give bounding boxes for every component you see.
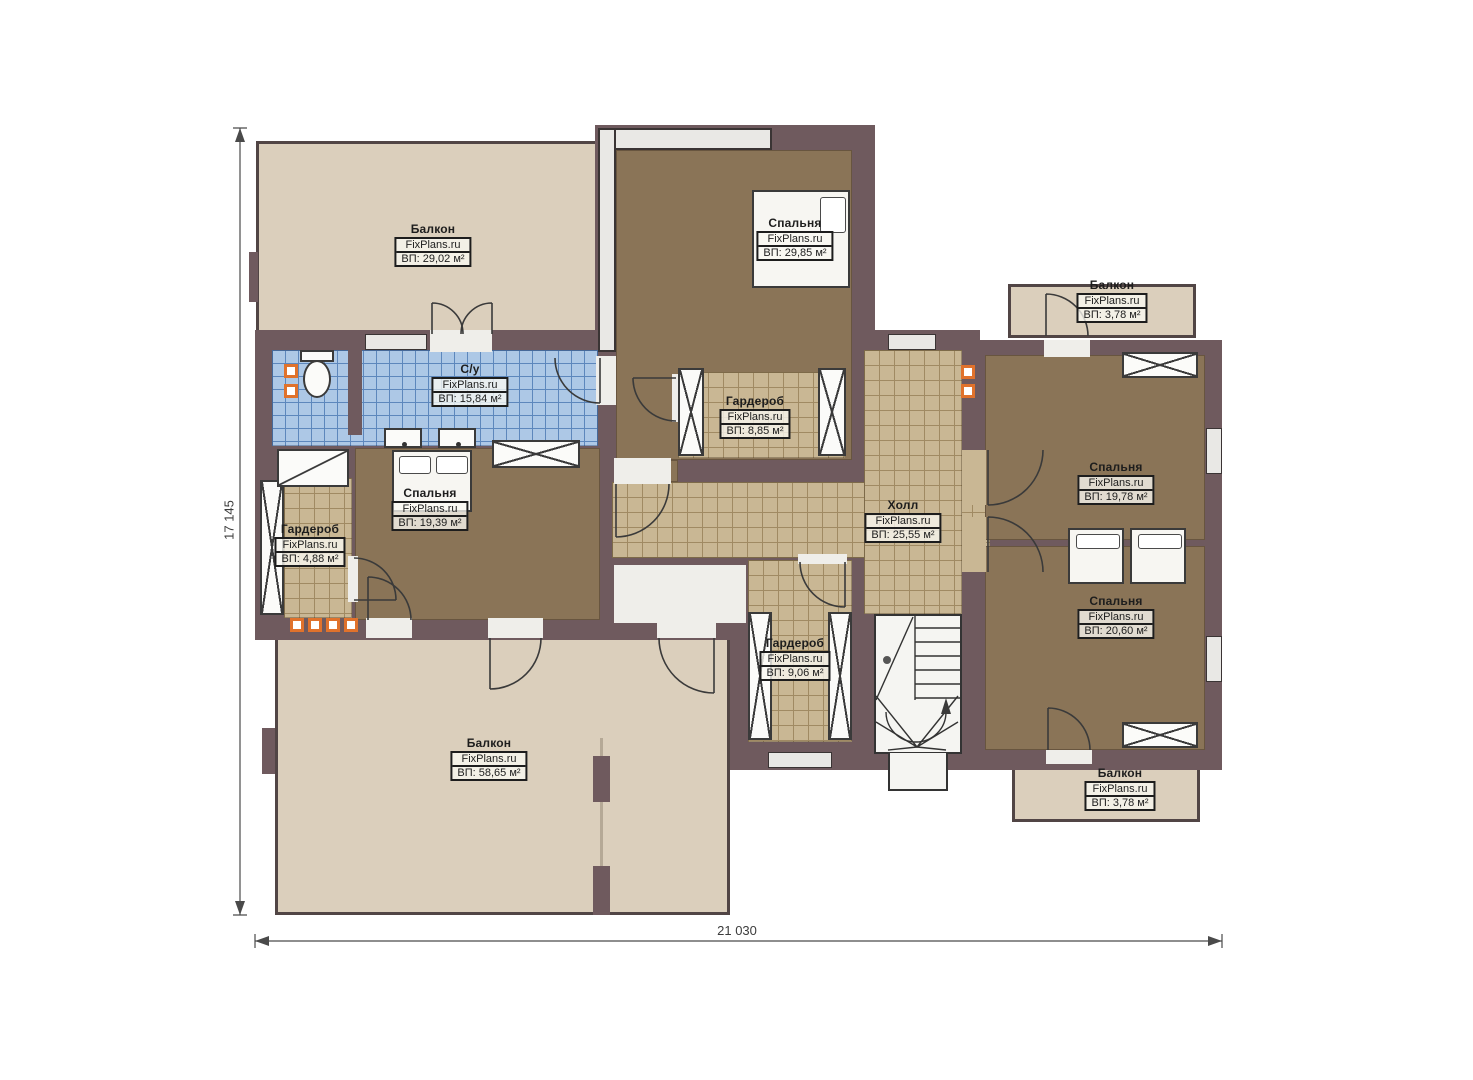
stairs xyxy=(874,614,962,754)
room-label-balcony-top-right: Балкон FixPlans.ru ВП: 3,78 м² xyxy=(1076,278,1147,323)
room-label-wardrobe-bottom: Гардероб FixPlans.ru ВП: 9,06 м² xyxy=(759,636,830,681)
window xyxy=(1206,636,1222,682)
room-label-balcony-top-left: Балкон FixPlans.ru ВП: 29,02 м² xyxy=(394,222,471,267)
opening-bedroom-r-upper xyxy=(962,450,986,505)
bathroom-partition xyxy=(348,350,362,435)
shower-icon xyxy=(277,449,349,487)
opening-balcony-bl-door xyxy=(488,618,543,638)
pillow xyxy=(399,456,431,474)
watermark: FixPlans.ru xyxy=(1086,783,1153,797)
room-label-bedroom-left: Спальня FixPlans.ru ВП: 19,39 м² xyxy=(391,486,468,531)
room-area: ВП: 19,78 м² xyxy=(1079,491,1152,503)
room-name: Спальня xyxy=(756,216,833,230)
wall-tower-top-gray xyxy=(598,128,772,150)
floor-hall-vertical xyxy=(864,350,962,614)
pillow xyxy=(436,456,468,474)
vent-icon xyxy=(308,618,322,632)
sink-icon xyxy=(384,428,422,448)
opening-wardrobe-left-door xyxy=(348,556,358,602)
room-area: ВП: 9,06 м² xyxy=(761,667,828,679)
opening-corridor-door xyxy=(614,458,671,484)
room-name: Холл xyxy=(864,498,941,512)
window xyxy=(1206,428,1222,474)
floor-plan: Балкон FixPlans.ru ВП: 29,02 м² Спальня … xyxy=(0,0,1473,1080)
room-label-bedroom-right-lower: Спальня FixPlans.ru ВП: 20,60 м² xyxy=(1077,594,1154,639)
balcony-pier xyxy=(249,252,258,302)
opening-balcony-br-door xyxy=(1046,750,1092,764)
room-name: Гардероб xyxy=(719,394,790,408)
opening-wardrobe-bottom-door xyxy=(798,554,847,564)
watermark: FixPlans.ru xyxy=(721,411,788,425)
room-label-bedroom-top: Спальня FixPlans.ru ВП: 29,85 м² xyxy=(756,216,833,261)
window xyxy=(768,752,832,768)
room-name: Гардероб xyxy=(759,636,830,650)
room-label-bedroom-right-upper: Спальня FixPlans.ru ВП: 19,78 м² xyxy=(1077,460,1154,505)
room-area: ВП: 58,65 м² xyxy=(452,767,525,779)
watermark: FixPlans.ru xyxy=(761,653,828,667)
watermark: FixPlans.ru xyxy=(866,515,939,529)
balcony-pier xyxy=(593,866,610,915)
pillow xyxy=(1076,534,1120,549)
dimension-height-label: 17 145 xyxy=(222,500,237,540)
watermark: FixPlans.ru xyxy=(758,233,831,247)
vent-icon xyxy=(290,618,304,632)
watermark: FixPlans.ru xyxy=(433,379,506,393)
room-name: Балкон xyxy=(394,222,471,236)
window xyxy=(365,334,427,350)
watermark: FixPlans.ru xyxy=(276,539,343,553)
vent-icon xyxy=(284,384,298,398)
room-name: Балкон xyxy=(1076,278,1147,292)
room-label-balcony-bottom-left: Балкон FixPlans.ru ВП: 58,65 м² xyxy=(450,736,527,781)
sink-icon xyxy=(438,428,476,448)
wall-tower-left-gray xyxy=(598,128,616,352)
pillow xyxy=(1138,534,1182,549)
closet-xbox xyxy=(1122,722,1198,748)
room-area: ВП: 8,85 м² xyxy=(721,425,788,437)
closet-xbox xyxy=(1122,352,1198,378)
room-name: Балкон xyxy=(1084,766,1155,780)
watermark: FixPlans.ru xyxy=(396,239,469,253)
watermark: FixPlans.ru xyxy=(1078,295,1145,309)
vent-icon xyxy=(326,618,340,632)
room-name: Спальня xyxy=(1077,594,1154,608)
dimension-width-label: 21 030 xyxy=(717,923,757,938)
watermark: FixPlans.ru xyxy=(1079,611,1152,625)
vent-icon xyxy=(961,384,975,398)
vent-icon xyxy=(344,618,358,632)
opening-bathroom-door xyxy=(596,356,616,405)
closet-xbox xyxy=(818,368,846,456)
room-label-balcony-bottom-right: Балкон FixPlans.ru ВП: 3,78 м² xyxy=(1084,766,1155,811)
room-label-bathroom: С/у FixPlans.ru ВП: 15,84 м² xyxy=(431,362,508,407)
room-label-hall: Холл FixPlans.ru ВП: 25,55 м² xyxy=(864,498,941,543)
vent-icon xyxy=(961,365,975,379)
room-area: ВП: 20,60 м² xyxy=(1079,625,1152,637)
bed xyxy=(1130,528,1186,584)
room-label-wardrobe-left: Гардероб FixPlans.ru ВП: 4,88 м² xyxy=(274,522,345,567)
balcony-pier xyxy=(593,756,610,802)
vent-icon xyxy=(284,364,298,378)
toilet-icon xyxy=(303,360,331,398)
watermark: FixPlans.ru xyxy=(452,753,525,767)
opening-bedroom-left-door xyxy=(366,618,412,638)
room-name: Спальня xyxy=(1077,460,1154,474)
room-area: ВП: 3,78 м² xyxy=(1078,309,1145,321)
opening-bedroom-r-lower xyxy=(962,517,986,572)
floor-tower-bottom xyxy=(614,565,746,623)
room-name: Балкон xyxy=(450,736,527,750)
closet-xbox xyxy=(828,612,852,740)
opening-balcony-doors xyxy=(430,330,492,352)
watermark: FixPlans.ru xyxy=(1079,477,1152,491)
room-area: ВП: 3,78 м² xyxy=(1086,797,1153,809)
stairs-landing xyxy=(888,753,948,791)
room-area: ВП: 29,02 м² xyxy=(396,253,469,265)
closet-xbox xyxy=(678,368,704,456)
opening-balcony-tr-door xyxy=(1044,340,1090,357)
room-area: ВП: 19,39 м² xyxy=(393,517,466,529)
room-area: ВП: 4,88 м² xyxy=(276,553,343,565)
room-area: ВП: 29,85 м² xyxy=(758,247,831,259)
room-name: Гардероб xyxy=(274,522,345,536)
window xyxy=(888,334,936,350)
room-name: С/у xyxy=(431,362,508,376)
room-label-wardrobe-top: Гардероб FixPlans.ru ВП: 8,85 м² xyxy=(719,394,790,439)
room-area: ВП: 15,84 м² xyxy=(433,393,506,405)
opening-tower-balcony-door xyxy=(657,620,716,638)
room-area: ВП: 25,55 м² xyxy=(866,529,939,541)
floor-bedroom-right-upper xyxy=(985,355,1205,540)
closet-xbox xyxy=(492,440,580,468)
watermark: FixPlans.ru xyxy=(393,503,466,517)
balcony-pier xyxy=(262,728,275,774)
bed xyxy=(1068,528,1124,584)
room-name: Спальня xyxy=(391,486,468,500)
